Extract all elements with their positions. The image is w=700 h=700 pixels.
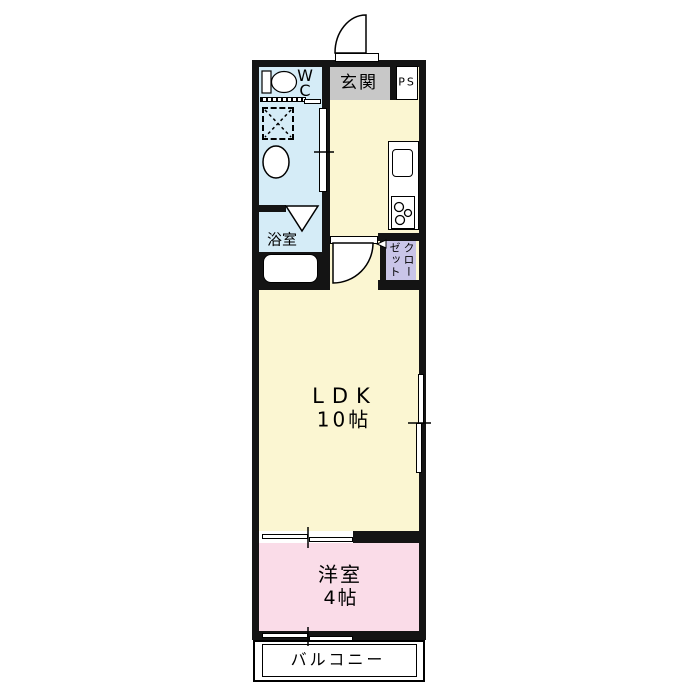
- bathroom-label: 浴室: [267, 231, 297, 248]
- bathtub-icon: [263, 254, 318, 283]
- ldk-size-label: 10帖: [317, 409, 371, 432]
- window-right-upper: [418, 374, 424, 424]
- entrance-threshold: [335, 53, 379, 62]
- closet-label: クローゼット: [387, 240, 415, 280]
- sliding-door-left-panel: [262, 534, 308, 539]
- bedroom-name-label: 洋室: [318, 564, 362, 587]
- sliding-door-right-panel: [309, 537, 353, 542]
- ldk-name-label: LDK: [312, 384, 378, 408]
- wall-right: [419, 60, 426, 640]
- stove-icon: [391, 196, 415, 229]
- wall-closet-bottom: [378, 280, 426, 290]
- bedroom-size-label: 4帖: [323, 588, 358, 610]
- window-right-lower: [416, 423, 422, 473]
- genkan-label: 玄関: [340, 74, 378, 94]
- ldk-doorway: [330, 236, 378, 244]
- balcony-label: バルコニー: [291, 651, 386, 669]
- wall-divider-right: [353, 531, 426, 543]
- wall-bath-top: [259, 205, 286, 212]
- ps-label: PS: [398, 77, 416, 90]
- washing-machine-icon: [262, 107, 294, 140]
- wall-left: [252, 60, 259, 640]
- floor-plan: W C 玄関 PS 浴室 クローゼット LDK 10帖 洋室 4帖 バルコニー: [0, 0, 700, 700]
- balcony-window-left-panel: [262, 633, 308, 638]
- entrance-door-arc-icon: [335, 15, 366, 53]
- kitchen-sink-icon: [392, 149, 413, 177]
- wc-label: W C: [297, 68, 313, 98]
- hall-sliding-door: [319, 108, 327, 192]
